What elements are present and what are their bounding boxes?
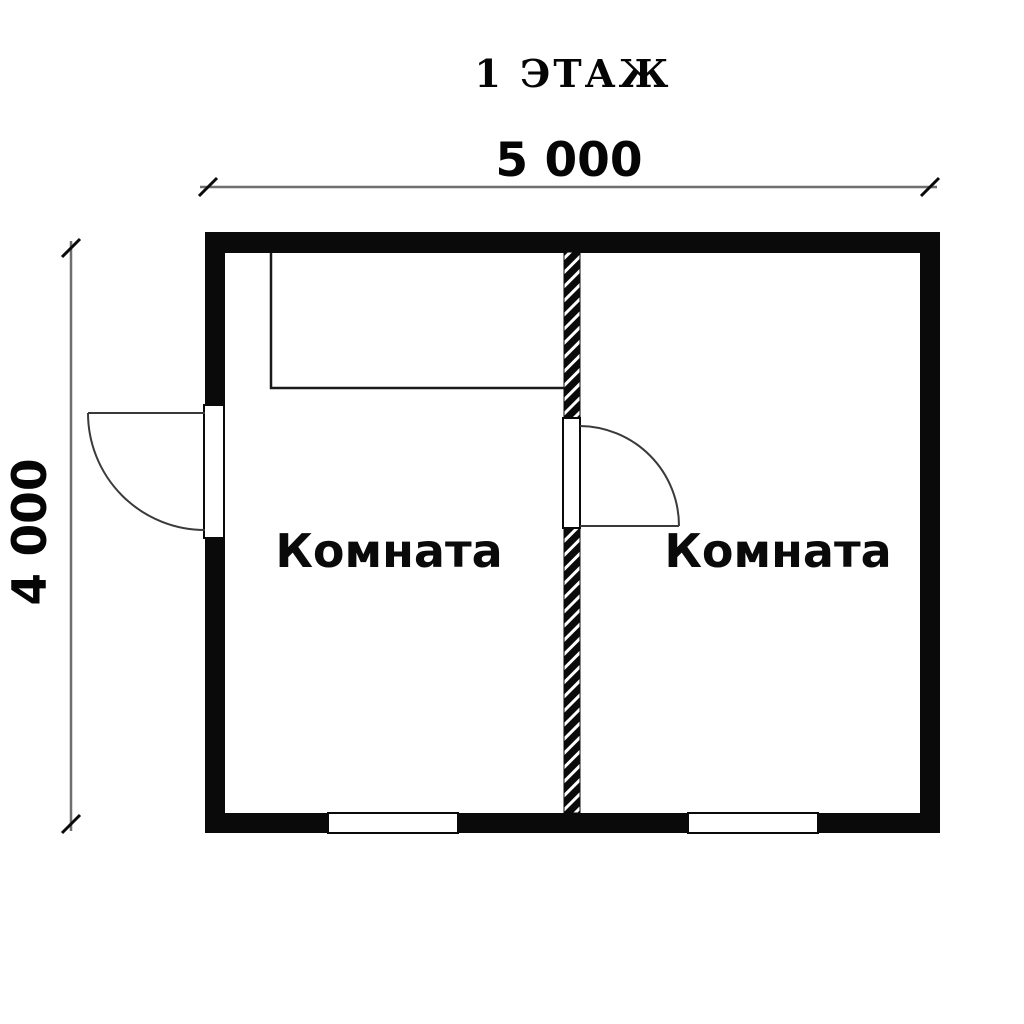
entrance-door-frame — [204, 405, 224, 538]
exterior-wall-right — [920, 232, 940, 833]
exterior-wall-left-lower — [205, 538, 225, 833]
room-label-left: Комната — [275, 524, 502, 578]
floor-plan-svg: 1 ЭТАЖ 5 000 4 000 — [0, 0, 1024, 1024]
partition-wall-lower — [564, 528, 580, 813]
height-dimension-label: 4 000 — [3, 458, 58, 605]
partition-wall-upper — [564, 252, 580, 418]
room-label-right: Комната — [664, 524, 891, 578]
window-right-room — [688, 813, 818, 833]
interior-door-frame — [563, 418, 580, 528]
floor-plan-canvas: 1 ЭТАЖ 5 000 4 000 — [0, 0, 1024, 1024]
exterior-wall-bottom — [205, 813, 940, 833]
exterior-wall-top — [205, 232, 940, 253]
floor-title: 1 ЭТАЖ — [475, 51, 672, 96]
window-left-room — [328, 813, 458, 833]
exterior-wall-left-upper — [205, 232, 225, 405]
width-dimension-label: 5 000 — [495, 133, 642, 188]
